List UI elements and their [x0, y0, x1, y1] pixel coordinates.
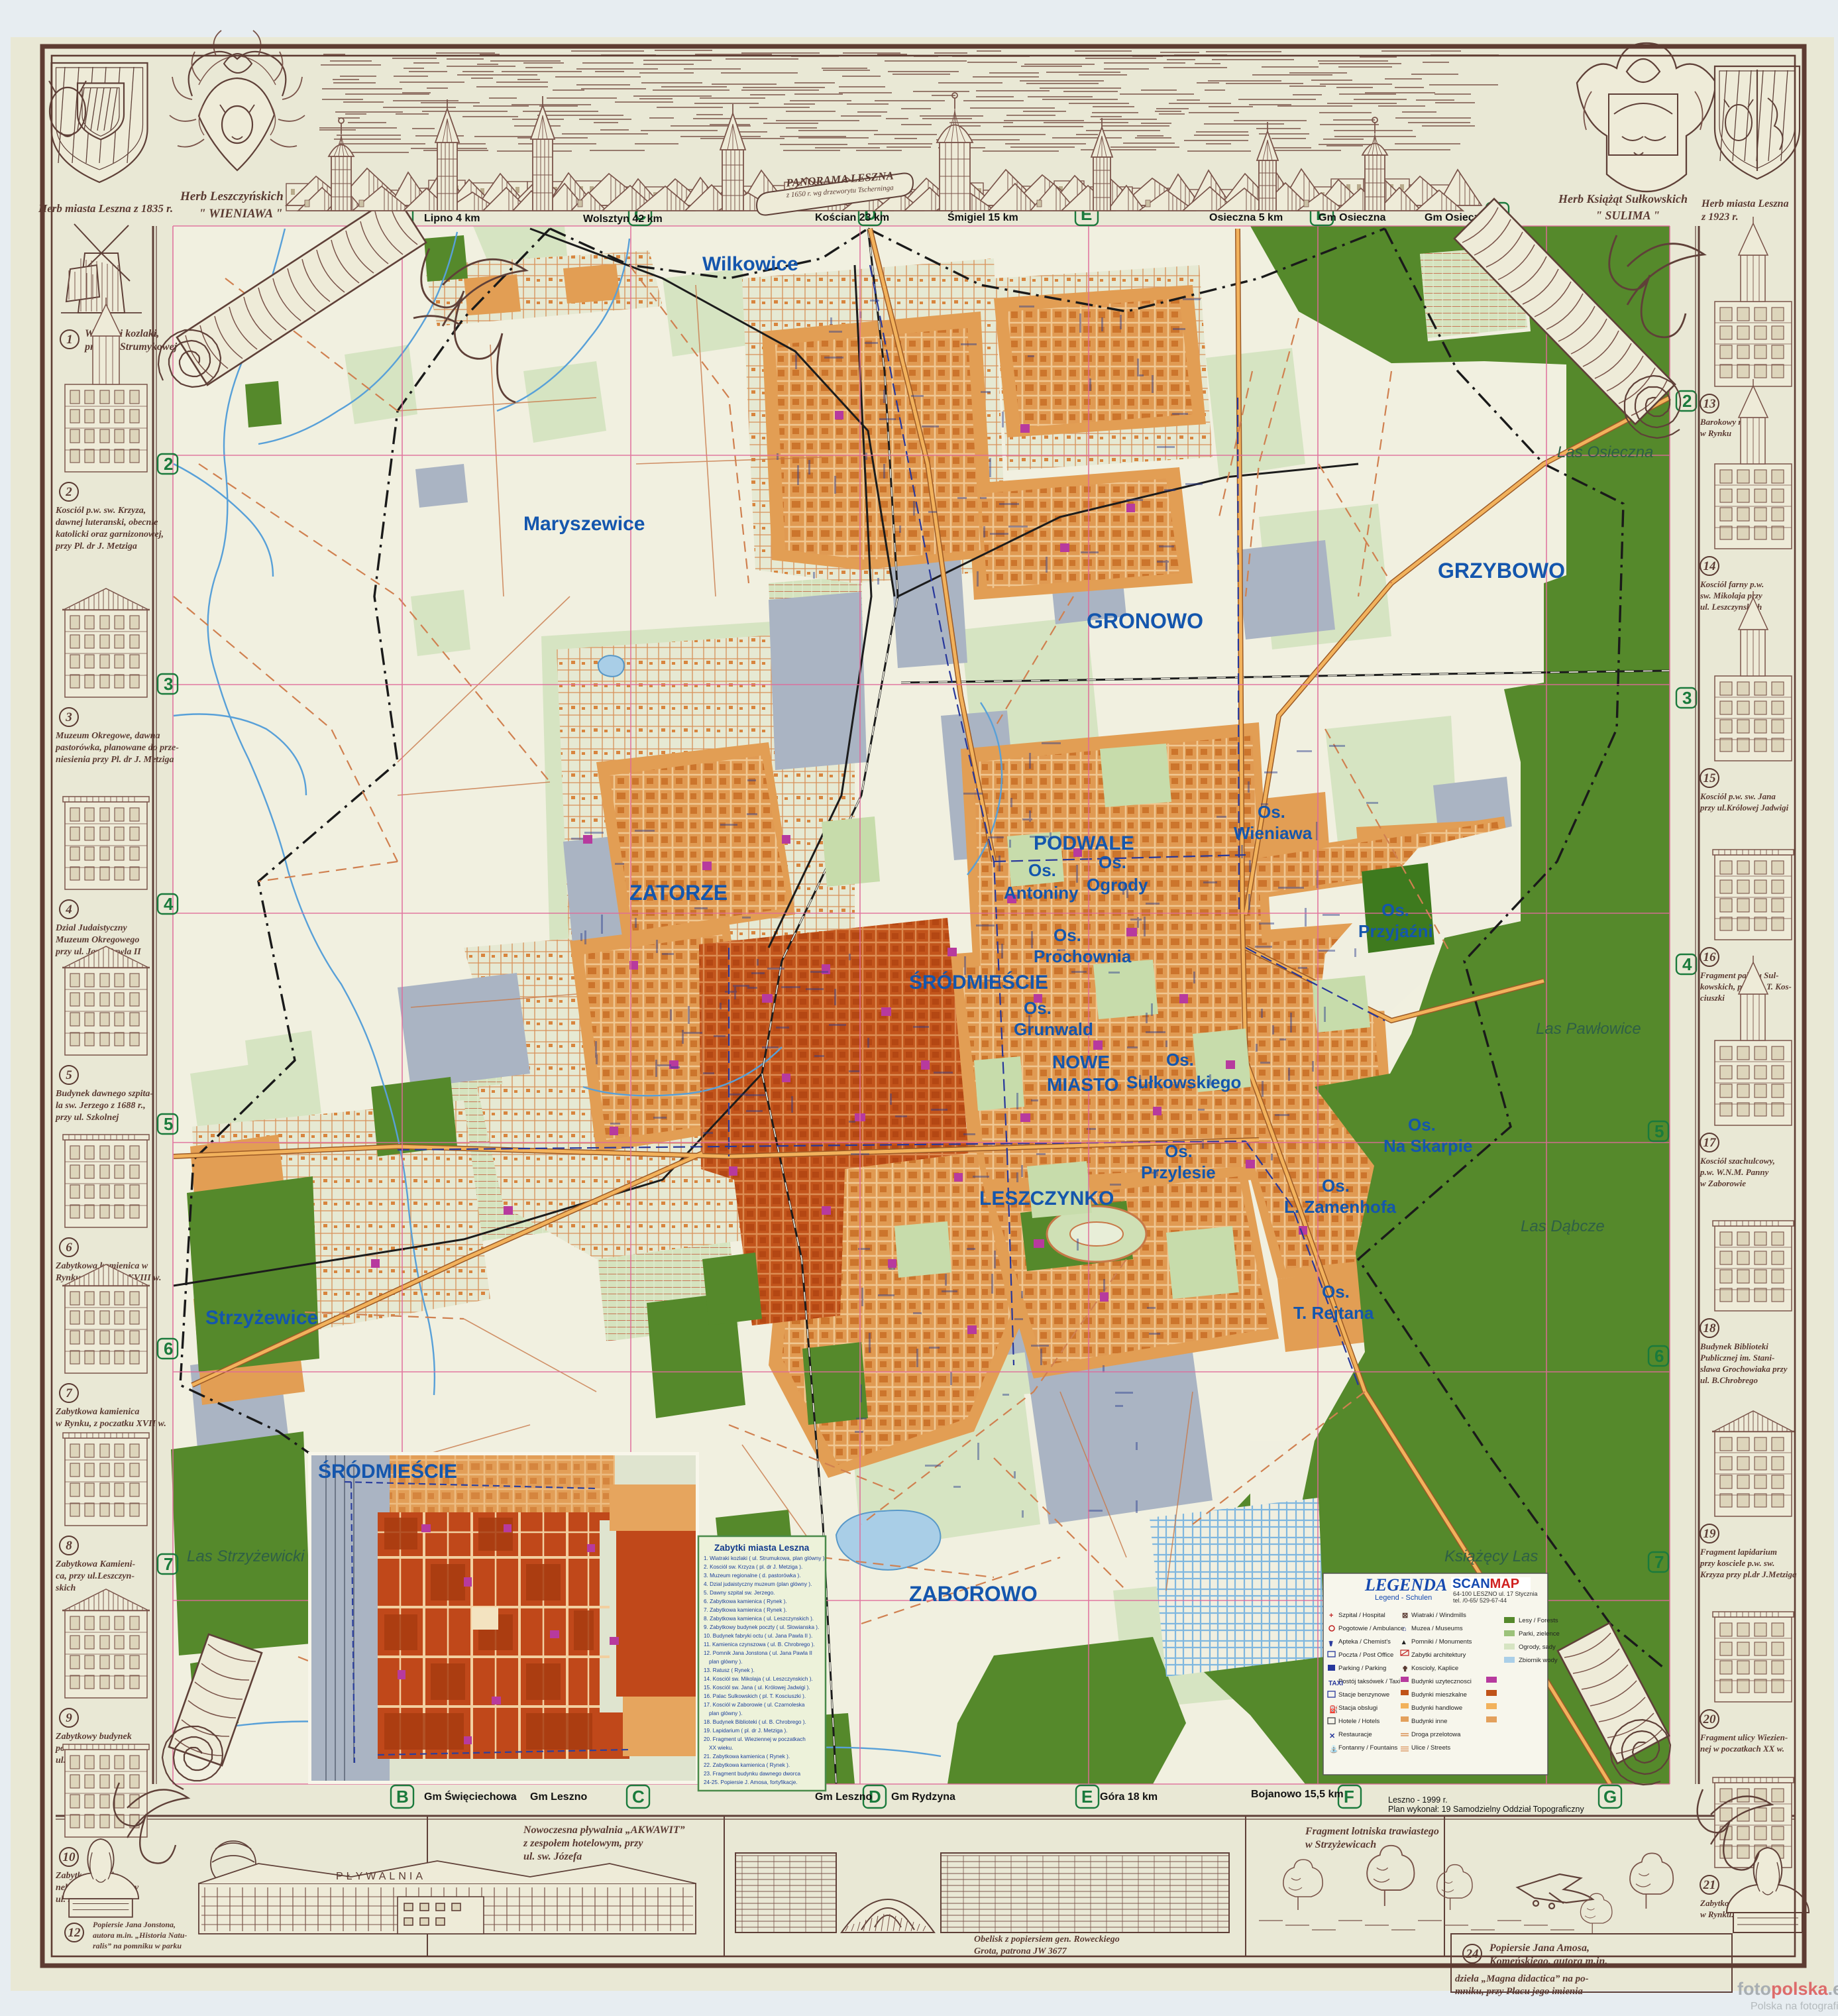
svg-text:12. Pomnik Jana Jonstona ( ul.: 12. Pomnik Jana Jonstona ( ul. Jana Pawl…: [704, 1650, 812, 1656]
svg-text:21: 21: [1703, 1878, 1716, 1892]
svg-text:ŚRÓDMIEŚCIE: ŚRÓDMIEŚCIE: [909, 971, 1048, 993]
svg-text:Fragment ulicy Wiezien-: Fragment ulicy Wiezien-: [1700, 1732, 1788, 1742]
svg-text:T. Rejtana: T. Rejtana: [1293, 1303, 1374, 1323]
svg-text:Apteka / Chemist's: Apteka / Chemist's: [1338, 1638, 1391, 1646]
svg-text:Os.: Os.: [1054, 925, 1081, 945]
svg-text:16. Palac Sulkowskich ( pl. T.: 16. Palac Sulkowskich ( pl. T. Kosciuszk…: [704, 1693, 806, 1699]
svg-text:nej w poczatkach XX w.: nej w poczatkach XX w.: [1700, 1744, 1784, 1754]
svg-text:15: 15: [1703, 771, 1717, 785]
svg-text:5: 5: [66, 1068, 72, 1082]
svg-text:ralis” na pomniku w parku: ralis” na pomniku w parku: [93, 1941, 182, 1950]
svg-text:Zabytki miasta Leszna: Zabytki miasta Leszna: [714, 1543, 810, 1553]
svg-text:Obelisk z popiersiem gen. Rowe: Obelisk z popiersiem gen. Roweckiego: [974, 1934, 1120, 1944]
svg-text:ŚRÓDMIEŚCIE: ŚRÓDMIEŚCIE: [318, 1460, 457, 1483]
svg-text:Parki, zielence: Parki, zielence: [1519, 1630, 1560, 1638]
svg-text:✟: ✟: [1402, 1665, 1408, 1673]
svg-text:dzieła „Magna didactica” na po: dzieła „Magna didactica” na po-: [1455, 1974, 1589, 1984]
svg-text:23. Fragment budynku dawnego d: 23. Fragment budynku dawnego dworca: [704, 1771, 801, 1777]
svg-text:Legend - Schulen: Legend - Schulen: [1375, 1594, 1432, 1602]
svg-text:Leszno - 1999 r.: Leszno - 1999 r.: [1388, 1795, 1448, 1805]
svg-text:☤: ☤: [1328, 1640, 1334, 1648]
svg-text:17: 17: [1703, 1136, 1717, 1150]
svg-text:fotopolska.eu: fotopolska.eu: [1737, 1979, 1838, 1999]
svg-text:2: 2: [65, 485, 72, 499]
svg-text:w Rynku: w Rynku: [1700, 428, 1731, 438]
svg-text:Os.: Os.: [1028, 860, 1056, 880]
svg-text:3. Muzeum regionalne ( d. past: 3. Muzeum regionalne ( d. pastorówka ).: [704, 1573, 801, 1579]
svg-text:Przyjaźni: Przyjaźni: [1358, 921, 1433, 941]
svg-text:autora m.in. „Historia Natu-: autora m.in. „Historia Natu-: [93, 1931, 187, 1940]
svg-text:Stacja obslugi: Stacja obslugi: [1338, 1705, 1378, 1712]
svg-text:Budynki handlowe: Budynki handlowe: [1411, 1705, 1462, 1712]
svg-text:Stacje benzynowe: Stacje benzynowe: [1338, 1691, 1389, 1699]
svg-text:4. Dzial judaistyczny muzeum (: 4. Dzial judaistyczny muzeum (plan glówn…: [704, 1581, 812, 1587]
svg-text:Lipno 4 km: Lipno 4 km: [424, 213, 480, 224]
svg-text:plan glówny ).: plan glówny ).: [709, 1659, 743, 1665]
svg-text:XX wieku.: XX wieku.: [709, 1745, 733, 1751]
svg-text:Sułkowskiego: Sułkowskiego: [1126, 1072, 1241, 1092]
svg-text:Restauracje: Restauracje: [1338, 1731, 1372, 1738]
svg-text:Fragment lapidarium: Fragment lapidarium: [1700, 1547, 1777, 1557]
svg-text:7: 7: [164, 1554, 173, 1574]
svg-text:Budynek dawnego szpita-: Budynek dawnego szpita-: [55, 1089, 153, 1099]
svg-text:GRZYBOWO: GRZYBOWO: [1438, 559, 1565, 583]
svg-text:16: 16: [1703, 950, 1717, 964]
svg-text:dawnej luteranski, obecnie: dawnej luteranski, obecnie: [56, 518, 158, 528]
svg-text:Śmigiel 15 km: Śmigiel 15 km: [947, 211, 1018, 223]
svg-text:Grota, patrona JW 3677: Grota, patrona JW 3677: [974, 1946, 1067, 1956]
svg-text:Publicznej im. Stani-: Publicznej im. Stani-: [1700, 1353, 1774, 1363]
svg-text:6: 6: [164, 1339, 173, 1359]
svg-text:18: 18: [1703, 1321, 1717, 1335]
svg-text:12: 12: [68, 1926, 81, 1940]
svg-text:6: 6: [1654, 1346, 1664, 1366]
svg-text:▴: ▴: [1401, 1638, 1406, 1646]
svg-text:G: G: [1603, 1787, 1617, 1807]
svg-text:Fragment palacu Sul-: Fragment palacu Sul-: [1700, 970, 1778, 980]
svg-text:22. Zabytkowa kamienica ( Ryne: 22. Zabytkowa kamienica ( Rynek ).: [704, 1762, 790, 1768]
svg-text:mniku, przy Placu jego imienia: mniku, przy Placu jego imienia: [1455, 1986, 1583, 1997]
svg-text:w Zaborowie: w Zaborowie: [1700, 1178, 1746, 1188]
svg-text:4: 4: [1682, 954, 1692, 974]
svg-text:Wilkowice: Wilkowice: [702, 253, 798, 275]
svg-text:Os.: Os.: [1381, 900, 1409, 920]
svg-text:Herb miasta Leszna: Herb miasta Leszna: [1701, 198, 1789, 209]
svg-text:⛲: ⛲: [1329, 1745, 1338, 1754]
svg-text:B: B: [396, 1787, 409, 1807]
svg-text:Gm Rydzyna: Gm Rydzyna: [891, 1791, 955, 1803]
svg-text:64-100 LESZNO ul. 17 Stycznia: 64-100 LESZNO ul. 17 Stycznia: [1453, 1591, 1538, 1597]
svg-text:Os.: Os.: [1166, 1050, 1194, 1070]
svg-text:6. Zabytkowa kamienica ( Rynek: 6. Zabytkowa kamienica ( Rynek ).: [704, 1598, 787, 1604]
svg-text:Grunwald: Grunwald: [1014, 1019, 1093, 1039]
svg-text:3: 3: [1682, 688, 1692, 708]
svg-text:Bojanowo 15,5 km: Bojanowo 15,5 km: [1251, 1789, 1344, 1800]
svg-text:Zabytkowy budynek: Zabytkowy budynek: [55, 1732, 132, 1742]
svg-text:7: 7: [1654, 1552, 1664, 1572]
svg-text:11. Kamienica czynszowa ( ul.: 11. Kamienica czynszowa ( ul. B. Chrobre…: [704, 1642, 815, 1648]
svg-text:Postój taksówek / Taxi: Postój taksówek / Taxi: [1338, 1678, 1400, 1685]
svg-text:5: 5: [164, 1114, 173, 1134]
svg-text:Os.: Os.: [1258, 802, 1285, 822]
svg-text:14: 14: [1703, 559, 1716, 573]
svg-text:⛽: ⛽: [1329, 1705, 1338, 1714]
svg-text:5. Dawny szpital sw. Jerzego.: 5. Dawny szpital sw. Jerzego.: [704, 1590, 775, 1596]
svg-text:w Strzyżewicach: w Strzyżewicach: [1305, 1839, 1376, 1850]
svg-text:Kosciól p.w. sw. Krzyza,: Kosciól p.w. sw. Krzyza,: [55, 506, 146, 516]
svg-text:ca, przy ul.Leszczyn-: ca, przy ul.Leszczyn-: [56, 1571, 135, 1581]
svg-text:C: C: [632, 1787, 645, 1807]
svg-text:Popiersie Jana Jonstona,: Popiersie Jana Jonstona,: [93, 1920, 176, 1929]
svg-text:Herb miasta Leszna z 1835 r.: Herb miasta Leszna z 1835 r.: [38, 202, 173, 215]
svg-text:przy ul. Szkolnej: przy ul. Szkolnej: [55, 1113, 119, 1123]
svg-text:Polska na fotografii: Polska na fotografii: [1751, 2001, 1838, 2012]
svg-text:2: 2: [164, 454, 173, 474]
svg-text:Parking / Parking: Parking / Parking: [1338, 1665, 1386, 1672]
svg-text:TAXI: TAXI: [1328, 1680, 1343, 1687]
svg-text:Os.: Os.: [1099, 852, 1126, 872]
svg-text:ZABOROWO: ZABOROWO: [909, 1582, 1038, 1606]
svg-text:Lesy / Forests: Lesy / Forests: [1519, 1617, 1558, 1624]
svg-text:Wolsztyn 42 km: Wolsztyn 42 km: [583, 213, 663, 225]
svg-text:Os.: Os.: [1024, 998, 1052, 1018]
svg-text:Nowoczesna pływalnia „AKWAWIT”: Nowoczesna pływalnia „AKWAWIT”: [523, 1824, 685, 1836]
svg-text:Os.: Os.: [1322, 1282, 1350, 1302]
svg-text:1: 1: [66, 333, 73, 347]
svg-text:Góra 18 km: Góra 18 km: [1100, 1791, 1158, 1803]
svg-text:Zabytkowa kamienica: Zabytkowa kamienica: [55, 1407, 139, 1417]
svg-text:tel. /0-65/ 529-67-44: tel. /0-65/ 529-67-44: [1453, 1597, 1507, 1604]
svg-text:slawa Grochowiaka przy: slawa Grochowiaka przy: [1700, 1364, 1788, 1374]
svg-text:pastorówka, planowane do prze-: pastorówka, planowane do prze-: [55, 743, 179, 753]
svg-text:Fontanny / Fountains: Fontanny / Fountains: [1338, 1744, 1397, 1752]
svg-text:⌂: ⌂: [1402, 1625, 1407, 1633]
svg-text:7. Zabytkowa kamienica ( Rynek: 7. Zabytkowa kamienica ( Rynek ).: [704, 1607, 787, 1613]
svg-text:Las Osieczna: Las Osieczna: [1557, 443, 1653, 461]
svg-text:3: 3: [164, 674, 173, 694]
svg-text:Fragment lotniska trawiastego: Fragment lotniska trawiastego: [1305, 1826, 1439, 1837]
svg-text:Budynek Biblioteki: Budynek Biblioteki: [1700, 1341, 1768, 1351]
svg-text:Las Strzyżewicki: Las Strzyżewicki: [187, 1547, 305, 1565]
svg-text:Ulice / Streets: Ulice / Streets: [1411, 1744, 1450, 1752]
svg-text:Gm Leszno: Gm Leszno: [815, 1791, 872, 1803]
svg-text:Antoniny: Antoniny: [1004, 883, 1079, 903]
svg-text:6: 6: [66, 1241, 72, 1255]
svg-text:10: 10: [63, 1850, 76, 1864]
svg-text:Popiersie Jana Amosa,: Popiersie Jana Amosa,: [1489, 1942, 1590, 1954]
svg-text:przy ul.Królowej Jadwigi: przy ul.Królowej Jadwigi: [1700, 803, 1789, 812]
svg-text:2: 2: [1682, 391, 1692, 411]
svg-text:10. Budynek fabryki octu ( ul.: 10. Budynek fabryki octu ( ul. Jana Pawl…: [704, 1633, 812, 1639]
svg-text:skich: skich: [55, 1583, 76, 1593]
svg-text:" WIENIAWA ": " WIENIAWA ": [199, 207, 282, 221]
svg-text:Gm Święciechowa: Gm Święciechowa: [424, 1790, 517, 1803]
svg-text:Zabytki architektury: Zabytki architektury: [1411, 1652, 1466, 1659]
svg-text:MIASTO: MIASTO: [1047, 1074, 1118, 1095]
svg-text:ZATORZE: ZATORZE: [629, 881, 728, 905]
svg-text:F: F: [1344, 1787, 1354, 1807]
svg-text:Budynki uzytecznosci: Budynki uzytecznosci: [1411, 1678, 1472, 1685]
svg-text:Gm Leszno: Gm Leszno: [530, 1791, 587, 1803]
svg-text:Muzea / Museums: Muzea / Museums: [1411, 1625, 1463, 1632]
svg-text:21. Zabytkowa kamienica ( Ryne: 21. Zabytkowa kamienica ( Rynek ).: [704, 1754, 790, 1760]
svg-text:Ogrody, sady: Ogrody, sady: [1519, 1644, 1556, 1651]
svg-text:Muzeum Okregowego: Muzeum Okregowego: [55, 935, 139, 945]
svg-text:la sw. Jerzego z 1688 r.,: la sw. Jerzego z 1688 r.,: [56, 1101, 146, 1111]
svg-text:niesienia przy Pl. dr J. Metzi: niesienia przy Pl. dr J. Metziga: [56, 755, 174, 765]
svg-text:Wieniawa: Wieniawa: [1234, 823, 1313, 843]
svg-text:1. Wiatraki kozlaki ( ul. Stru: 1. Wiatraki kozlaki ( ul. Strumukowa, pl…: [704, 1555, 826, 1561]
svg-text:3: 3: [65, 710, 72, 724]
svg-text:L. Zamenhofa: L. Zamenhofa: [1284, 1197, 1397, 1217]
svg-text:GRONOWO: GRONOWO: [1087, 609, 1203, 633]
svg-text:2. Kosciól sw. Krzyza ( pl. dr: 2. Kosciól sw. Krzyza ( pl. dr J. Metzig…: [704, 1564, 802, 1570]
svg-text:✕: ✕: [1329, 1732, 1335, 1740]
svg-text:NOWE: NOWE: [1052, 1052, 1110, 1072]
svg-text:Na Skarpie: Na Skarpie: [1383, 1136, 1472, 1156]
svg-text:Droga przelotowa: Droga przelotowa: [1411, 1731, 1461, 1738]
svg-text:19. Lapidarium ( pl. dr J. Met: 19. Lapidarium ( pl. dr J. Metziga ).: [704, 1728, 788, 1734]
svg-text:Herb Leszczyńskich: Herb Leszczyńskich: [180, 190, 284, 203]
svg-text:24-25. Popiersie J. Amosa, for: 24-25. Popiersie J. Amosa, fortyfikacje.: [704, 1779, 798, 1785]
svg-text:Przylesie: Przylesie: [1141, 1162, 1216, 1182]
svg-text:Muzeum Okregowe, dawna: Muzeum Okregowe, dawna: [55, 731, 160, 741]
svg-text:Budynki mieszkalne: Budynki mieszkalne: [1411, 1691, 1467, 1699]
svg-text:+: +: [1329, 1612, 1333, 1620]
svg-text:19: 19: [1703, 1527, 1717, 1541]
svg-text:18. Budynek Biblioteki ( ul. B: 18. Budynek Biblioteki ( ul. B. Chrobreg…: [704, 1719, 806, 1725]
svg-text:Os.: Os.: [1408, 1115, 1436, 1135]
svg-text:Kosciól p.w. sw. Jana: Kosciól p.w. sw. Jana: [1700, 791, 1776, 801]
svg-text:14. Kosciól sw. Mikolaja ( ul.: 14. Kosciól sw. Mikolaja ( ul. Leszczyns…: [704, 1676, 813, 1682]
svg-text:Budynki inne: Budynki inne: [1411, 1718, 1447, 1725]
svg-text:20. Fragment ul. Wieziennej w: 20. Fragment ul. Wieziennej w poczatkach: [704, 1736, 806, 1742]
svg-text:Pomniki / Monuments: Pomniki / Monuments: [1411, 1638, 1472, 1646]
svg-text:Zabytkowa Kamieni-: Zabytkowa Kamieni-: [55, 1559, 136, 1569]
svg-text:Herb Książąt Sułkowskich: Herb Książąt Sułkowskich: [1558, 192, 1688, 205]
svg-text:katolicki oraz garnizonowej,: katolicki oraz garnizonowej,: [56, 530, 164, 539]
svg-text:Os.: Os.: [1165, 1141, 1193, 1161]
svg-text:Osieczna 5 km: Osieczna 5 km: [1209, 212, 1283, 223]
svg-text:7: 7: [66, 1386, 73, 1400]
svg-text:4: 4: [65, 903, 72, 917]
svg-text:5: 5: [1654, 1121, 1664, 1141]
svg-text:Pogotowie / Ambulance: Pogotowie / Ambulance: [1338, 1625, 1404, 1632]
svg-text:8. Zabytkowa kamienica ( ul. L: 8. Zabytkowa kamienica ( ul. Leszczynski…: [704, 1616, 814, 1622]
svg-text:w Rynku, z poczatku XVII w.: w Rynku, z poczatku XVII w.: [56, 1419, 166, 1429]
svg-text:17. Kosciól w Zaborowie ( ul.: 17. Kosciól w Zaborowie ( ul. Czarnolesk…: [704, 1702, 805, 1708]
svg-text:Dzial Judaistyczny: Dzial Judaistyczny: [55, 923, 128, 933]
svg-text:LESZCZYNKO: LESZCZYNKO: [979, 1188, 1114, 1209]
svg-text:24: 24: [1466, 1947, 1479, 1961]
svg-text:z zespołem hotelowym, przy: z zespołem hotelowym, przy: [523, 1838, 643, 1849]
svg-text:Wiatraki / Windmills: Wiatraki / Windmills: [1411, 1612, 1466, 1619]
svg-text:LEGENDA: LEGENDA: [1364, 1575, 1447, 1595]
svg-text:15. Kosciól sw. Jana ( ul. Kró: 15. Kosciól sw. Jana ( ul. Królowej Jadw…: [704, 1685, 810, 1691]
svg-text:p.w. W.N.M. Panny: p.w. W.N.M. Panny: [1700, 1167, 1769, 1177]
svg-text:4: 4: [164, 894, 174, 914]
svg-text:przy Pl. dr J. Metziga: przy Pl. dr J. Metziga: [55, 541, 137, 551]
svg-text:Las Dąbcze: Las Dąbcze: [1521, 1217, 1605, 1235]
svg-text:8: 8: [66, 1539, 72, 1553]
svg-text:Hotele / Hotels: Hotele / Hotels: [1338, 1718, 1380, 1725]
svg-text:Maryszewice: Maryszewice: [523, 513, 645, 535]
svg-text:Plan wykonał: 19 Samodzielny O: Plan wykonał: 19 Samodzielny Oddział Top…: [1388, 1805, 1585, 1814]
svg-text:ul. B.Chrobrego: ul. B.Chrobrego: [1700, 1375, 1758, 1385]
svg-text:przy kosciele p.w. sw.: przy kosciele p.w. sw.: [1700, 1558, 1774, 1568]
svg-text:Kosciól szachulcowy,: Kosciól szachulcowy,: [1700, 1156, 1775, 1166]
svg-text:ul. sw. Józefa: ul. sw. Józefa: [523, 1851, 582, 1862]
svg-text:Os.: Os.: [1322, 1176, 1350, 1196]
svg-text:z 1923 r.: z 1923 r.: [1701, 211, 1739, 223]
svg-text:" SULIMA ": " SULIMA ": [1595, 209, 1660, 222]
svg-text:Ogrody: Ogrody: [1087, 875, 1148, 895]
svg-text:Strzyżewice: Strzyżewice: [205, 1307, 318, 1329]
svg-text:Szpital / Hospital: Szpital / Hospital: [1338, 1612, 1385, 1619]
svg-text:Książęcy Las: Książęcy Las: [1444, 1547, 1538, 1565]
svg-text:PŁYWALNIA: PŁYWALNIA: [336, 1871, 426, 1882]
svg-text:13: 13: [1703, 397, 1716, 411]
svg-text:⊠: ⊠: [1402, 1612, 1408, 1620]
svg-text:9. Zabytkowy budynek poczty (: 9. Zabytkowy budynek poczty ( ul. Slowia…: [704, 1624, 819, 1630]
svg-text:13. Ratusz ( Rynek ).: 13. Ratusz ( Rynek ).: [704, 1667, 755, 1673]
svg-text:20: 20: [1703, 1712, 1717, 1726]
svg-text:9: 9: [66, 1711, 72, 1725]
svg-text:SCANMAP: SCANMAP: [1452, 1577, 1519, 1591]
svg-text:Poczta / Post Office: Poczta / Post Office: [1338, 1652, 1393, 1659]
svg-text:plan glówny ).: plan glówny ).: [709, 1710, 743, 1716]
svg-text:Las Pawłowice: Las Pawłowice: [1536, 1020, 1641, 1038]
svg-text:Koscioly, Kaplice: Koscioly, Kaplice: [1411, 1665, 1458, 1672]
svg-text:Krzyza przy pl.dr J.Metziga: Krzyza przy pl.dr J.Metziga: [1700, 1569, 1797, 1579]
svg-text:PODWALE: PODWALE: [1034, 832, 1134, 854]
svg-text:E: E: [1081, 1787, 1093, 1807]
svg-text:ciuszki: ciuszki: [1700, 993, 1725, 1003]
svg-text:Zbiornik wody: Zbiornik wody: [1519, 1657, 1558, 1664]
svg-text:Prochownia: Prochownia: [1034, 946, 1132, 966]
svg-text:Kosciól farny p.w.: Kosciól farny p.w.: [1700, 579, 1764, 589]
svg-text:Gm Osieczna: Gm Osieczna: [1319, 212, 1385, 223]
svg-text:Kościan 23 km: Kościan 23 km: [815, 212, 889, 223]
